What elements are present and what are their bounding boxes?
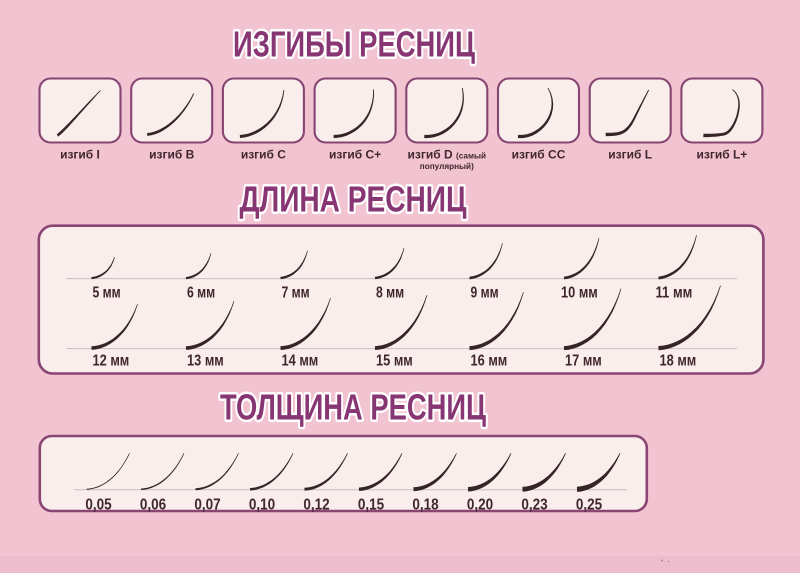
svg-text:16 мм: 16 мм — [471, 353, 508, 370]
svg-text:0,10: 0,10 — [249, 497, 275, 514]
svg-text:5 мм: 5 мм — [93, 285, 121, 302]
svg-text:9 мм: 9 мм — [471, 285, 499, 302]
svg-text:14 мм: 14 мм — [282, 353, 319, 370]
svg-text:7 мм: 7 мм — [282, 285, 310, 302]
svg-text:ДЛИНА РЕСНИЦ: ДЛИНА РЕСНИЦ — [240, 178, 468, 219]
svg-text:изгиб C: изгиб C — [241, 148, 286, 162]
svg-text:ТОЛЩИНА РЕСНИЦ: ТОЛЩИНА РЕСНИЦ — [220, 387, 487, 428]
svg-text:10 мм: 10 мм — [561, 285, 598, 302]
svg-text:изгиб L: изгиб L — [608, 148, 652, 162]
svg-text:0,23: 0,23 — [521, 497, 547, 514]
svg-text:11 мм: 11 мм — [656, 285, 693, 302]
svg-text:0,18: 0,18 — [412, 497, 438, 514]
svg-text:0,12: 0,12 — [303, 497, 329, 514]
svg-text:ИЗГИБЫ РЕСНИЦ: ИЗГИБЫ РЕСНИЦ — [233, 24, 476, 65]
svg-text:8 мм: 8 мм — [376, 285, 404, 302]
svg-text:изгиб CC: изгиб CC — [512, 148, 566, 162]
svg-text:0,06: 0,06 — [140, 497, 166, 514]
svg-text:изгиб I: изгиб I — [60, 148, 100, 162]
svg-text:популярный): популярный) — [420, 162, 474, 171]
svg-text:0,20: 0,20 — [467, 497, 493, 514]
svg-text:0,05: 0,05 — [85, 497, 111, 514]
svg-text:13 мм: 13 мм — [187, 353, 224, 370]
svg-text:0,07: 0,07 — [194, 497, 220, 514]
svg-text:изгиб L+: изгиб L+ — [696, 148, 747, 162]
svg-text:0,15: 0,15 — [358, 497, 384, 514]
svg-text:0,25: 0,25 — [576, 497, 602, 514]
svg-text:изгиб C+: изгиб C+ — [329, 148, 381, 162]
svg-text:6 мм: 6 мм — [187, 285, 215, 302]
svg-text:17 мм: 17 мм — [565, 353, 602, 370]
svg-text:изгиб B: изгиб B — [149, 148, 194, 162]
svg-text:12 мм: 12 мм — [93, 353, 130, 370]
svg-text:15 мм: 15 мм — [376, 353, 413, 370]
svg-text:18 мм: 18 мм — [660, 353, 697, 370]
